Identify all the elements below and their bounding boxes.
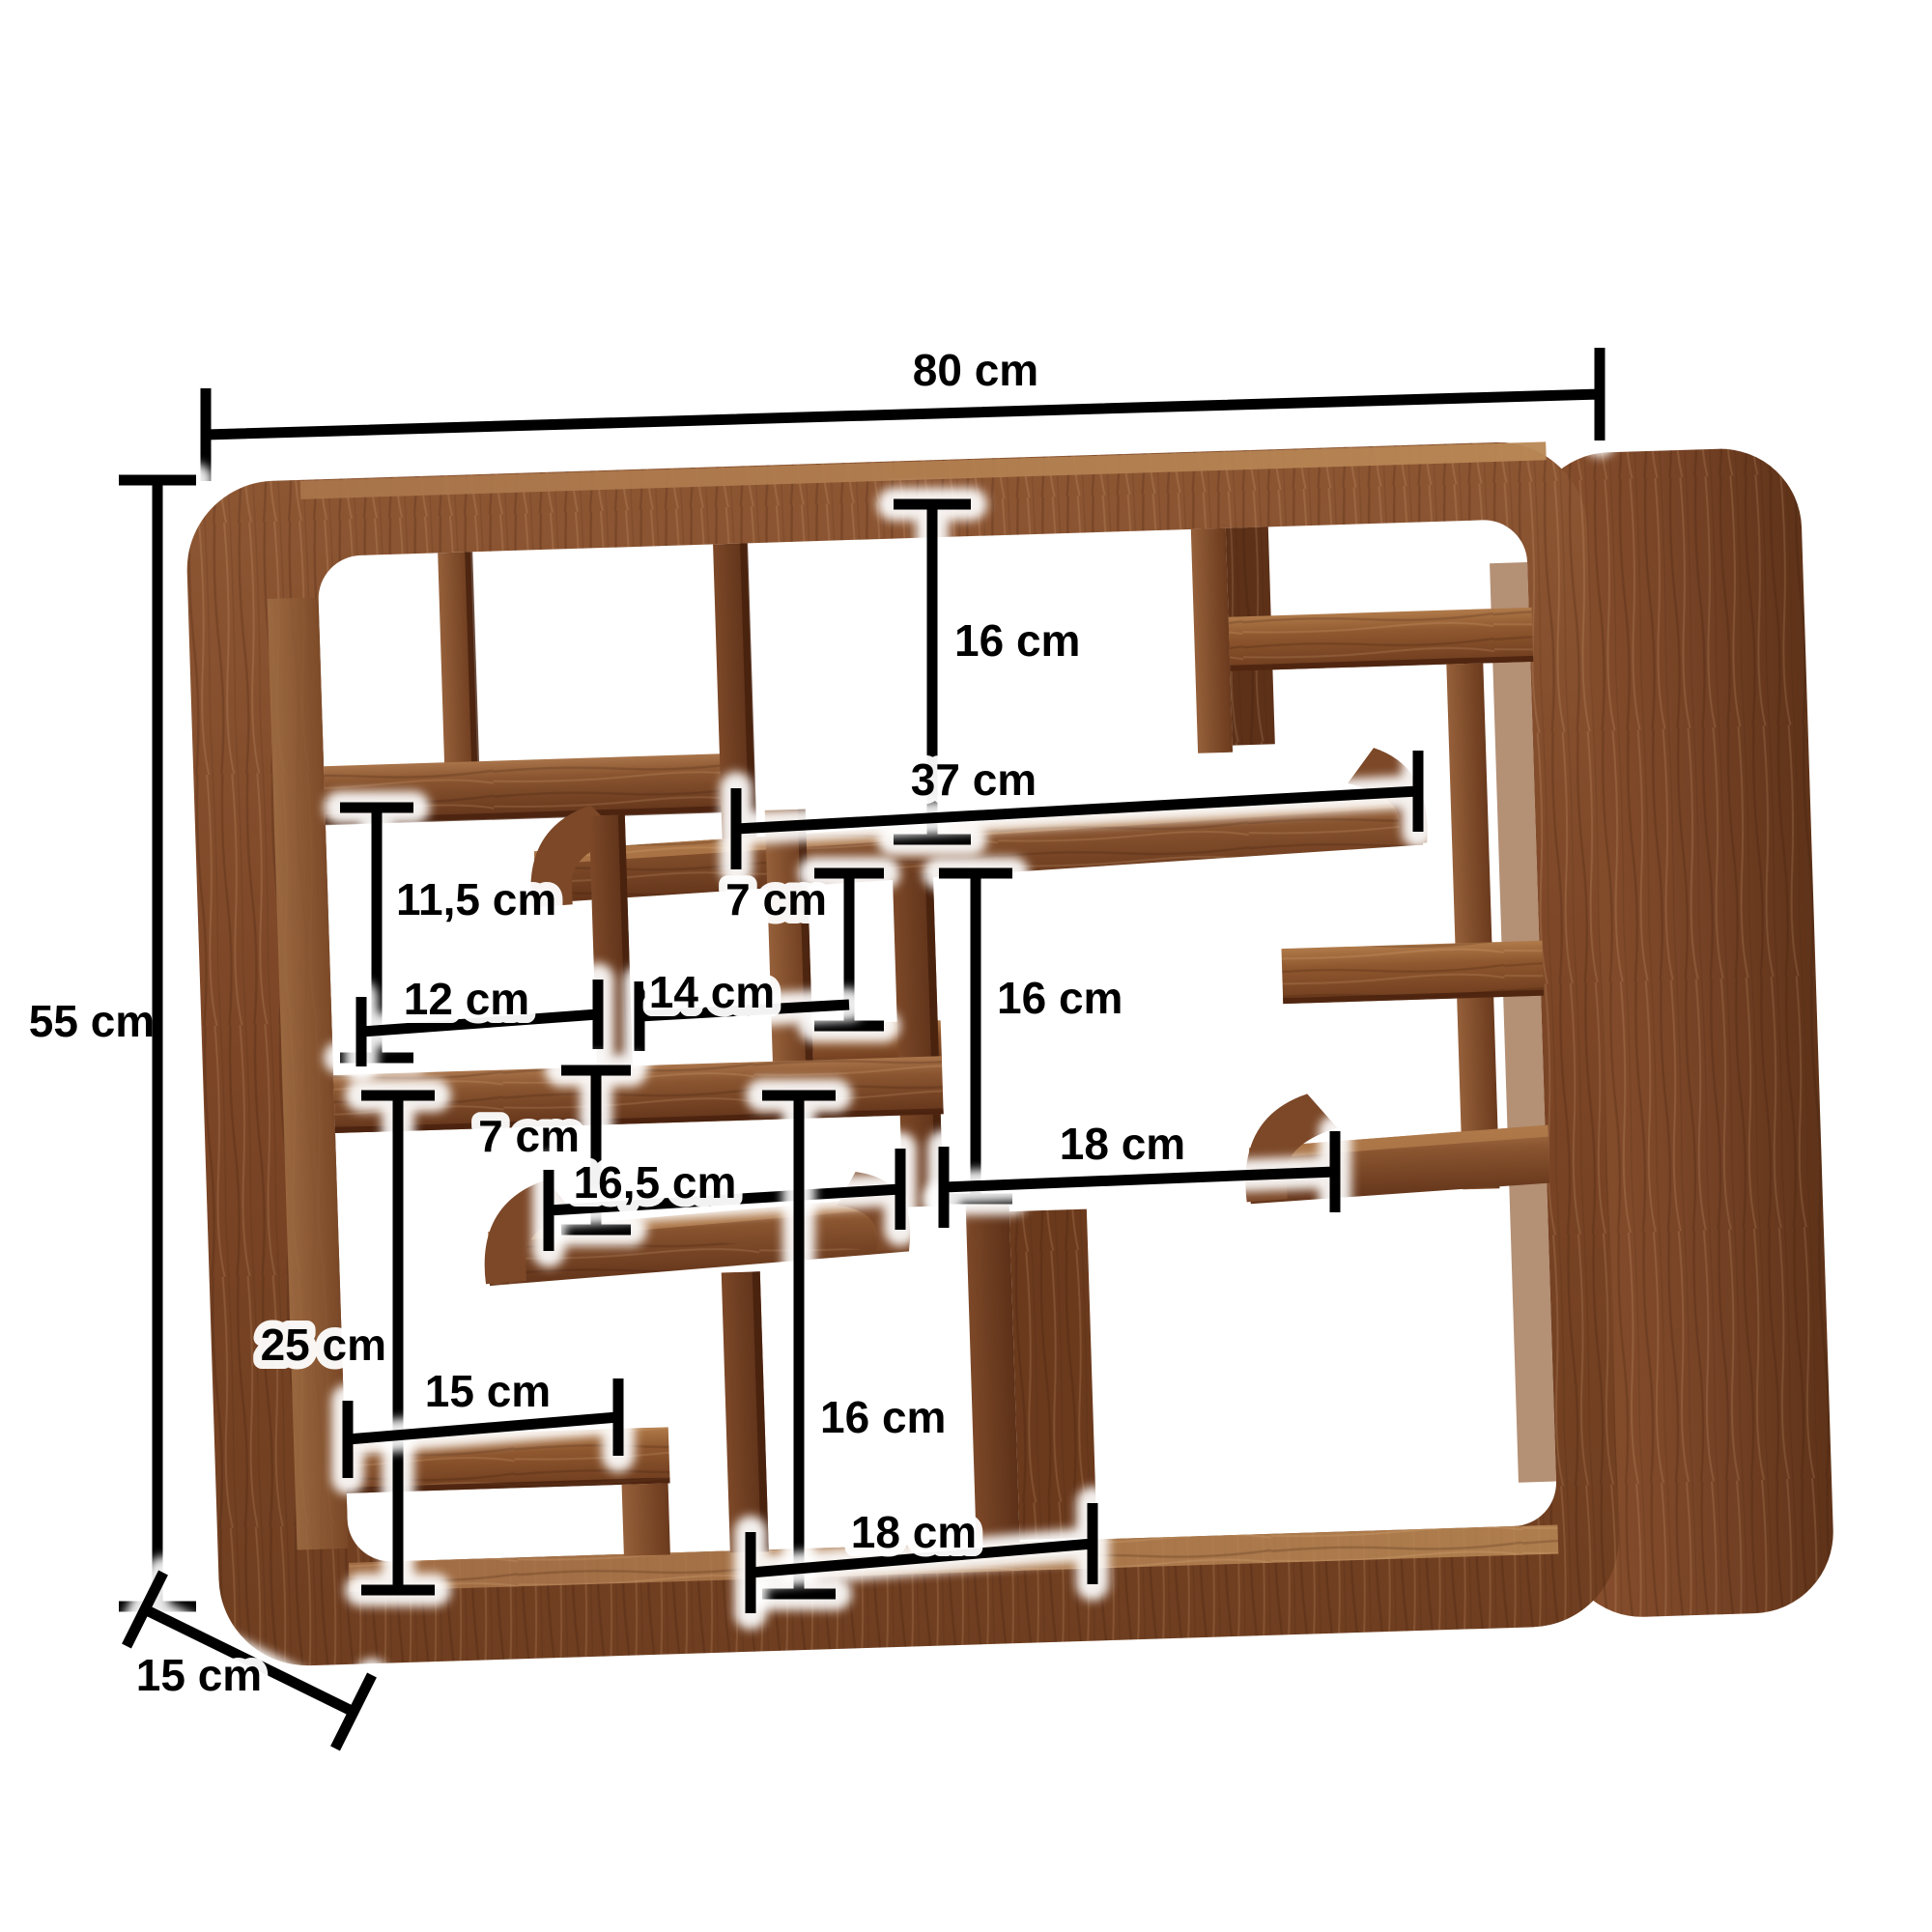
dimension-line — [762, 1095, 836, 1594]
shelf-top-right — [1229, 608, 1534, 671]
dim-label-center-opening-height: 16 cm — [997, 973, 1122, 1023]
dim-label-left-opening-height: 11,5 cm — [396, 874, 556, 924]
diagram-canvas: 80 cm 55 cm 15 cm 15 cm 16 cm 16 cm 37 c… — [0, 0, 1932, 1932]
divider-bottom-left — [722, 1271, 769, 1552]
dim-label-total-depth: 15 cm — [136, 1650, 262, 1700]
dim-label-total-height: 55 cm — [29, 996, 155, 1046]
dim-label-bottom-left-width: 15 cm — [425, 1366, 551, 1416]
dim-label-center-opening-width: 18 cm — [1060, 1119, 1185, 1169]
dim-label-top-opening-height: 16 cm — [954, 615, 1080, 666]
divider-bottom-left-lower — [622, 1483, 670, 1555]
divider-bottom-center — [966, 1202, 1097, 1546]
dim-label-bottom-left-height: 25 cm — [261, 1320, 386, 1370]
dim-label-lower-small-height: 7 cm — [478, 1111, 580, 1161]
dim-label-upper-small-height: 7 cm — [725, 874, 827, 924]
dim-label-bottom-center-height: 16 cm — [820, 1392, 946, 1442]
product-dimension-diagram: 80 cm 55 cm 15 cm 15 cm 16 cm 16 cm 37 c… — [0, 0, 1932, 1932]
dim-label-bottom-center-width: 18 cm — [851, 1507, 977, 1557]
dim-label-left-opening-width: 12 cm — [404, 974, 529, 1024]
divider-mid-right — [1446, 663, 1499, 1189]
dim-label-total-width: 80 cm — [913, 345, 1038, 395]
dim-label-middle-shelf-width: 37 cm — [911, 754, 1037, 805]
dim-label-lower-shelf-width: 16,5 cm — [574, 1157, 737, 1207]
dim-total-height: 55 cm — [29, 480, 196, 1606]
shelf-mid-right — [1281, 941, 1544, 1004]
dim-label-center-left-width: 14 cm — [649, 967, 775, 1017]
